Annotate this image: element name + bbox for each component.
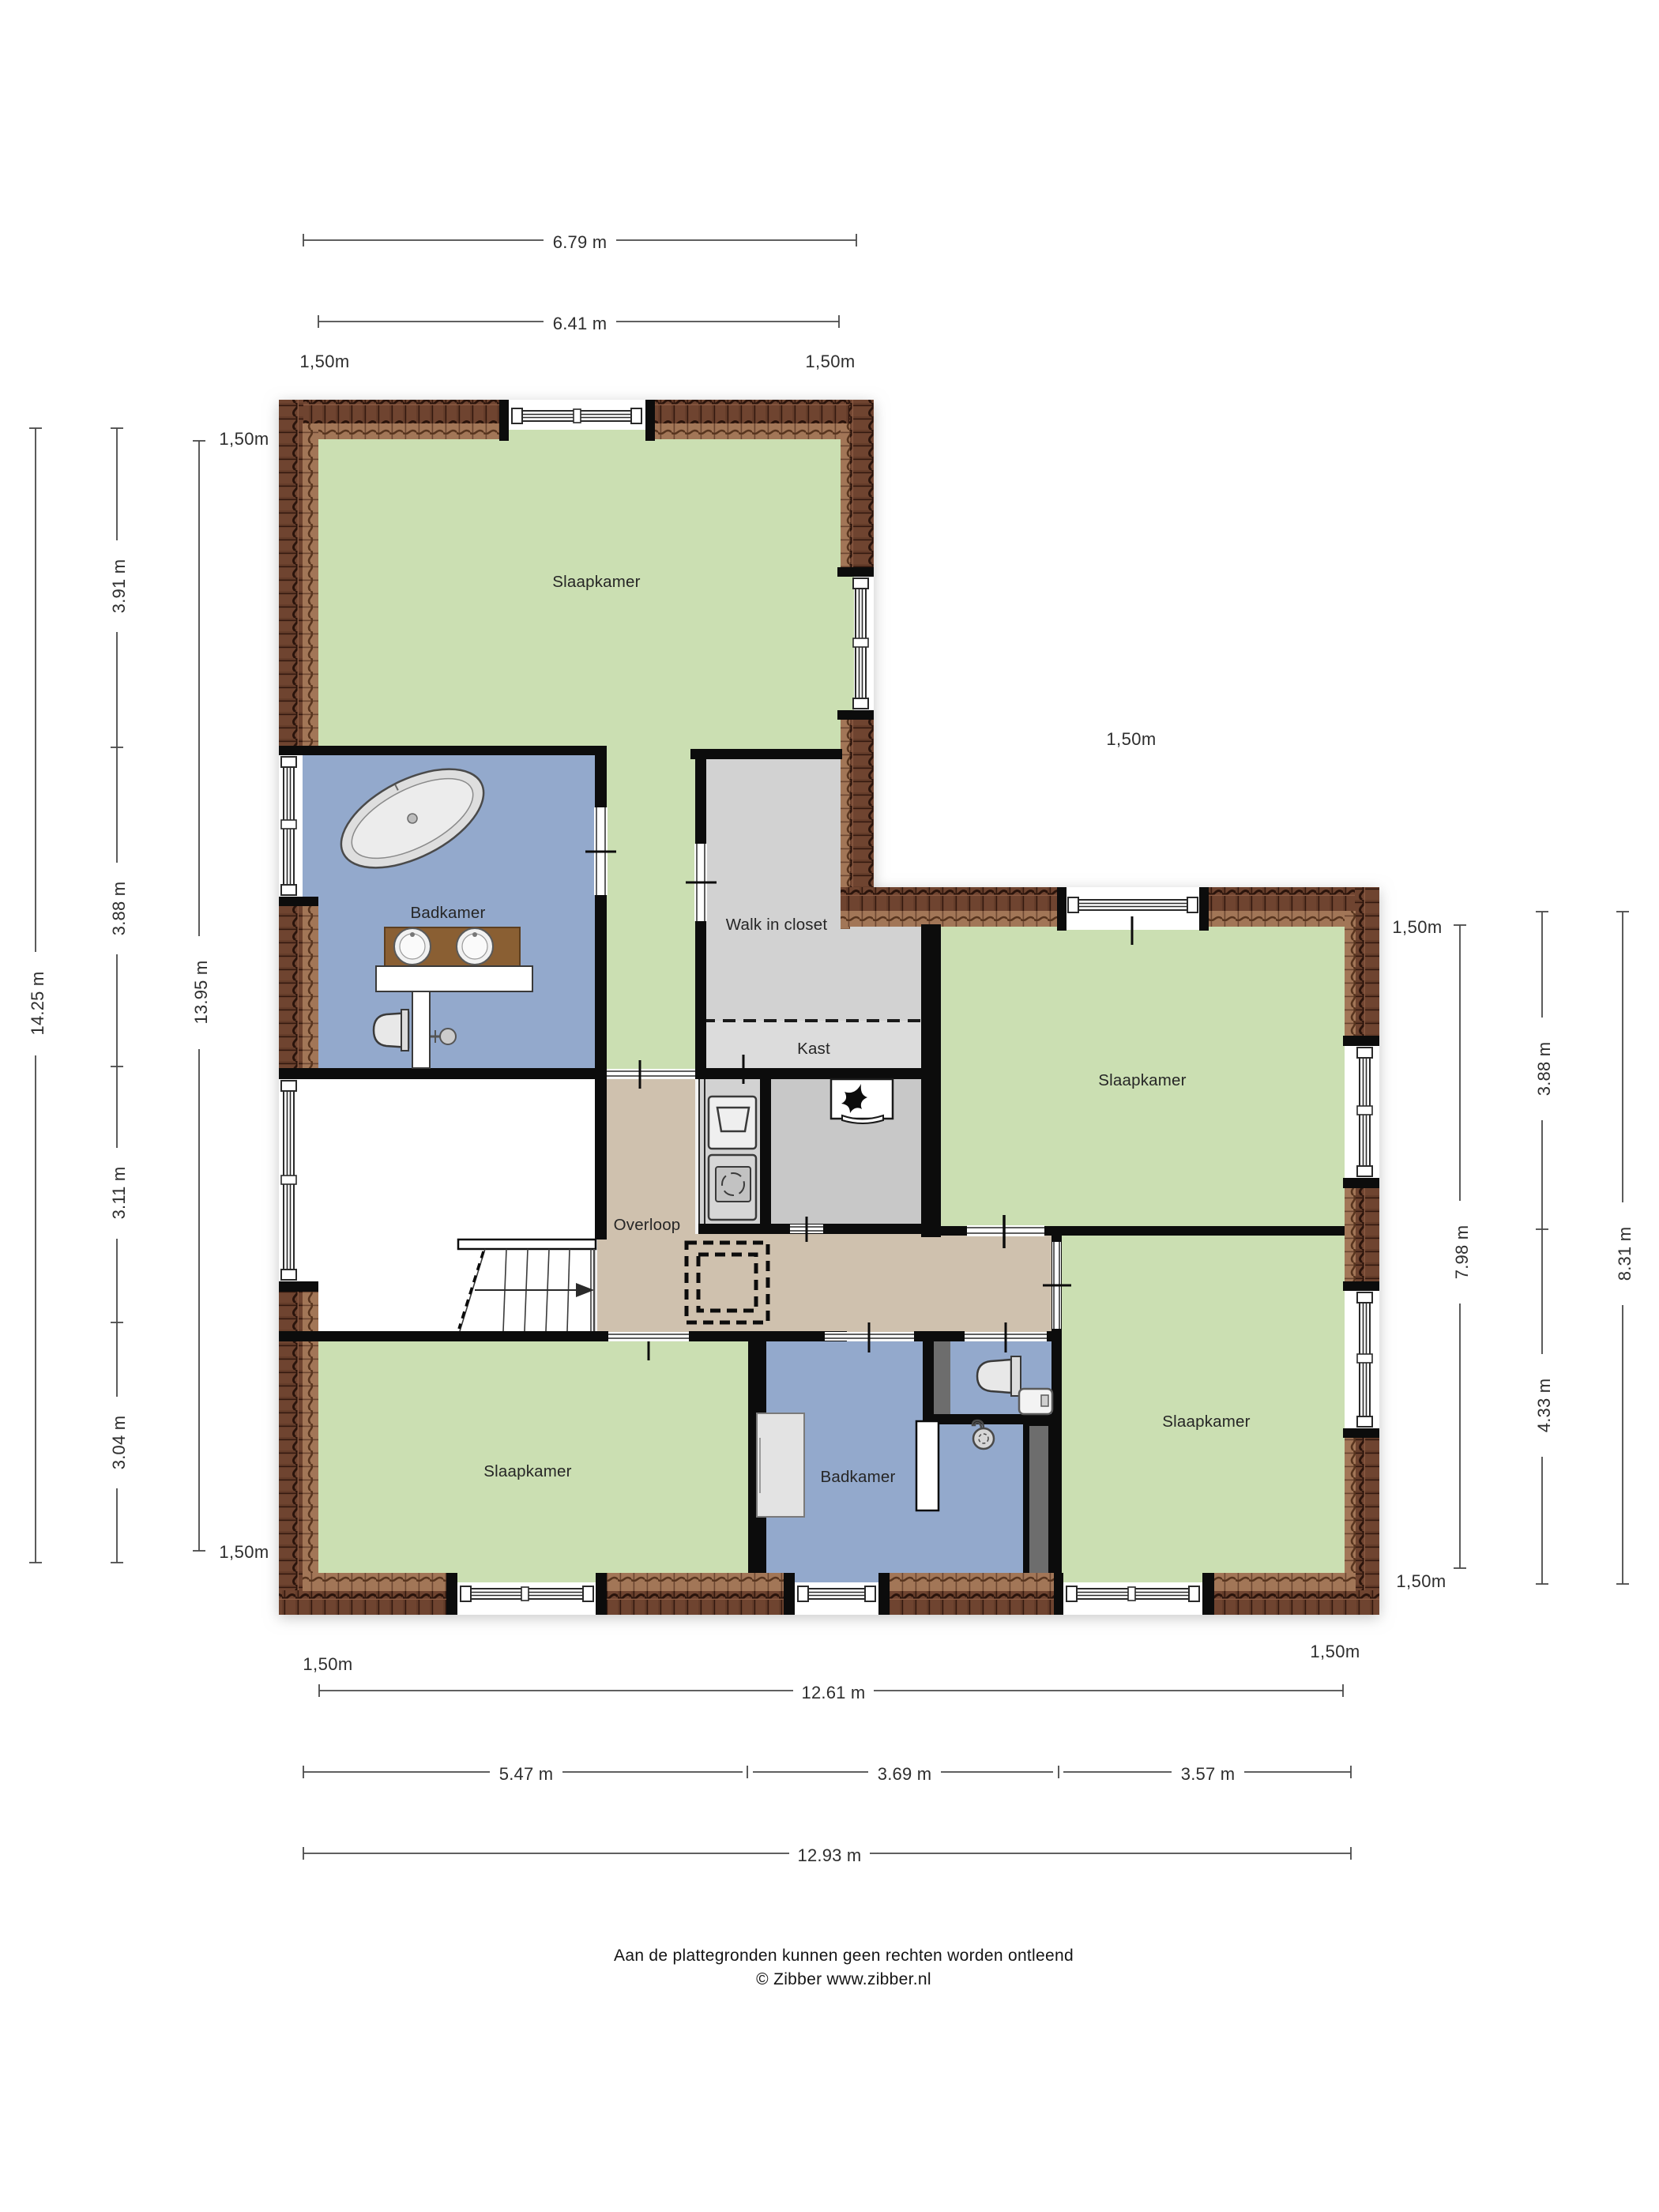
svg-text:Slaapkamer: Slaapkamer: [1162, 1413, 1250, 1431]
svg-text:13.95 m: 13.95 m: [191, 961, 211, 1025]
svg-text:Overloop: Overloop: [614, 1216, 681, 1234]
svg-text:1,50m: 1,50m: [219, 429, 269, 449]
svg-text:3.88 m: 3.88 m: [109, 882, 129, 935]
svg-text:Slaapkamer: Slaapkamer: [483, 1462, 571, 1480]
svg-text:Slaapkamer: Slaapkamer: [552, 573, 640, 591]
svg-text:3.11 m: 3.11 m: [109, 1167, 129, 1220]
svg-text:12.93 m: 12.93 m: [798, 1845, 862, 1865]
svg-text:3.69 m: 3.69 m: [878, 1764, 931, 1784]
svg-text:3.91 m: 3.91 m: [109, 559, 129, 613]
svg-text:1,50m: 1,50m: [1392, 917, 1442, 937]
svg-text:Aan de plattegronden kunnen ge: Aan de plattegronden kunnen geen rechten…: [614, 1947, 1074, 1965]
svg-text:Badkamer: Badkamer: [410, 904, 485, 922]
svg-text:Slaapkamer: Slaapkamer: [1098, 1071, 1186, 1089]
svg-text:1,50m: 1,50m: [303, 1654, 352, 1674]
svg-text:Kast: Kast: [797, 1040, 830, 1058]
svg-text:Walk in closet: Walk in closet: [726, 916, 828, 934]
svg-text:1,50m: 1,50m: [805, 352, 855, 371]
svg-text:3.57 m: 3.57 m: [1181, 1764, 1235, 1784]
svg-text:4.33 m: 4.33 m: [1534, 1379, 1554, 1432]
svg-text:1,50m: 1,50m: [299, 352, 349, 371]
svg-text:14.25 m: 14.25 m: [28, 972, 47, 1036]
svg-text:6.79 m: 6.79 m: [553, 232, 607, 252]
svg-text:1,50m: 1,50m: [219, 1542, 269, 1562]
svg-text:8.31 m: 8.31 m: [1615, 1227, 1635, 1281]
svg-text:5.47 m: 5.47 m: [499, 1764, 553, 1784]
svg-text:1,50m: 1,50m: [1310, 1642, 1360, 1661]
svg-text:Badkamer: Badkamer: [820, 1468, 895, 1486]
svg-text:3.88 m: 3.88 m: [1534, 1042, 1554, 1096]
svg-text:1,50m: 1,50m: [1106, 729, 1156, 749]
svg-text:3.04 m: 3.04 m: [109, 1416, 129, 1469]
svg-text:12.61 m: 12.61 m: [802, 1683, 866, 1702]
svg-text:1,50m: 1,50m: [1396, 1571, 1446, 1591]
svg-text:© Zibber www.zibber.nl: © Zibber www.zibber.nl: [756, 1970, 931, 1988]
svg-text:7.98 m: 7.98 m: [1452, 1225, 1472, 1279]
svg-text:6.41 m: 6.41 m: [553, 314, 607, 333]
